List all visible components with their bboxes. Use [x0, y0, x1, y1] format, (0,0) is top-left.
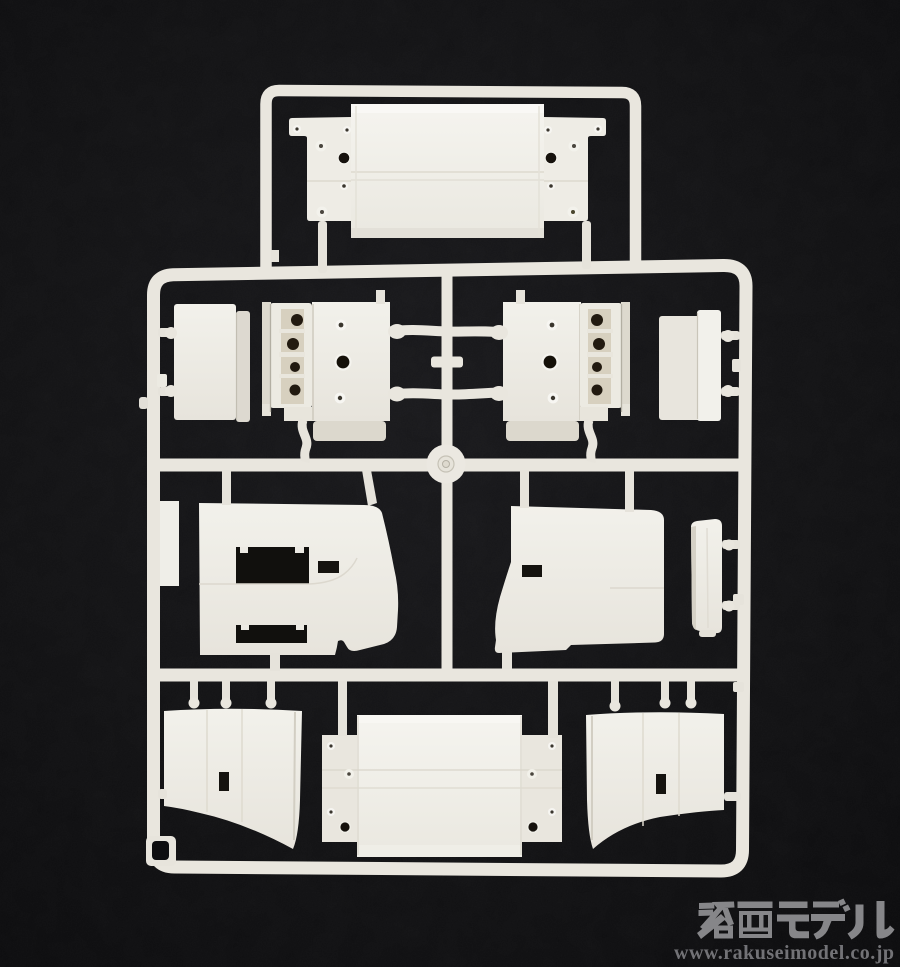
svg-text:www.rakuseimodel.co.jp: www.rakuseimodel.co.jp — [674, 942, 894, 964]
